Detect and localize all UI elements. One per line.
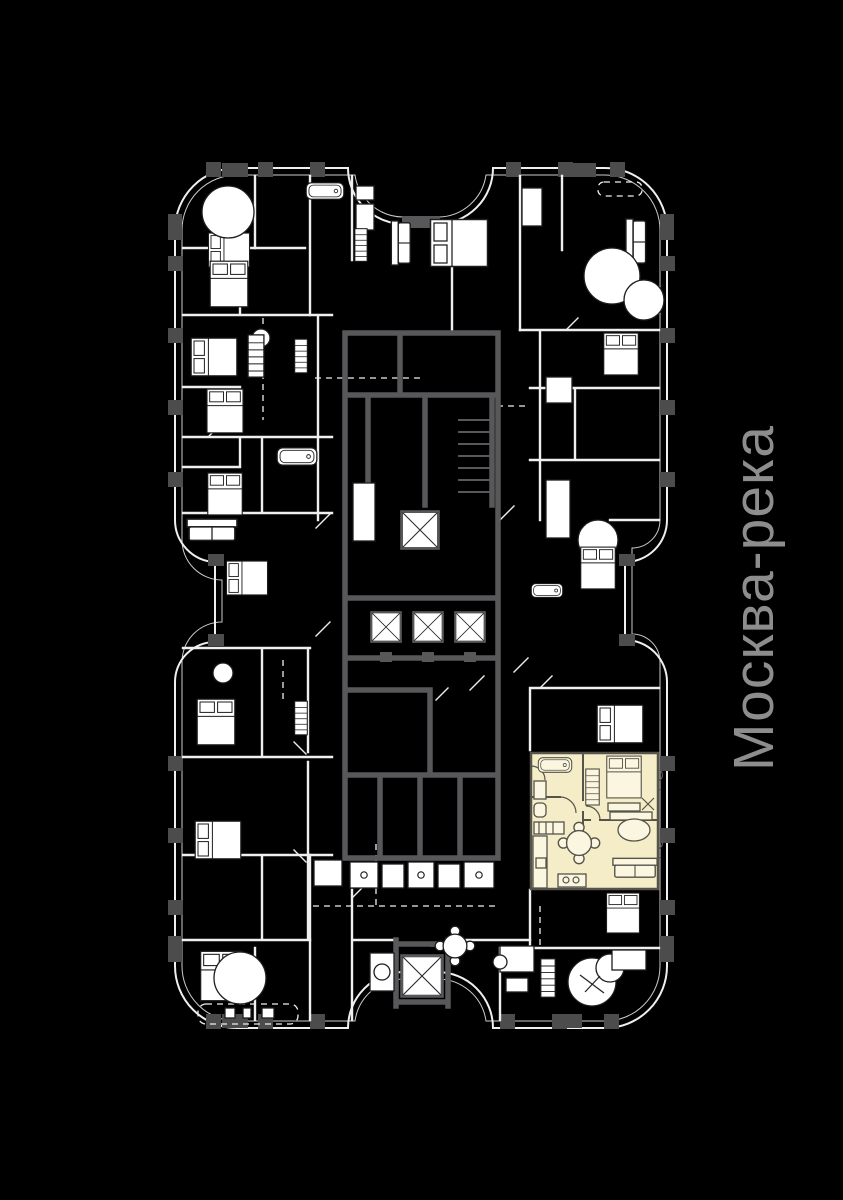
terrace-items — [225, 1008, 274, 1018]
lounge-chair-icon — [618, 819, 650, 841]
washbasin-icon — [374, 964, 390, 980]
elevator-shaft-icon — [413, 612, 442, 641]
bed-icon — [607, 756, 641, 798]
bed-icon — [604, 333, 638, 375]
daybed-icon — [612, 950, 646, 970]
rug-icon — [214, 952, 266, 1004]
stair-treads — [458, 420, 492, 492]
bed-icon — [197, 699, 235, 745]
bench-icon — [608, 803, 640, 811]
toilet-icon — [534, 803, 546, 817]
bed-icon — [581, 547, 615, 589]
sofa-icon — [187, 519, 237, 540]
bed-icon — [431, 220, 488, 267]
bed-icon — [210, 261, 248, 307]
bed-icon — [597, 705, 643, 743]
side-table-icon — [506, 978, 528, 992]
armchair-icon — [624, 280, 664, 320]
washer-icon — [546, 377, 572, 403]
sofa-icon — [391, 221, 410, 265]
chair-icon — [493, 955, 507, 969]
wardrobe-icon — [541, 959, 555, 997]
bed-icon — [191, 338, 237, 376]
washbasin-icon — [534, 781, 546, 799]
bathtub-icon — [277, 448, 317, 465]
wardrobe-icon — [248, 335, 264, 377]
bed-icon — [226, 561, 267, 595]
bed-icon — [208, 473, 242, 515]
kitchen-unit-icon — [546, 480, 570, 538]
stove-icon — [558, 874, 586, 887]
floor-plan-canvas: Москва-река — [0, 0, 843, 1200]
sofa-icon — [613, 858, 657, 877]
bed-icon — [607, 893, 640, 933]
sink-icon — [536, 858, 546, 868]
armchair-icon — [213, 663, 233, 683]
stair-shaft-icon — [402, 956, 442, 996]
service-shaft-icon — [402, 512, 439, 549]
wardrobe-icon — [355, 229, 367, 262]
kitchen-unit-icon — [353, 483, 375, 541]
river-label: Москва-река — [722, 425, 786, 771]
kitchen-strip — [314, 860, 494, 888]
floor-plan-page: Москва-река — [0, 0, 843, 1200]
highlighted-apartment[interactable] — [531, 753, 663, 889]
door-swing-lines — [208, 318, 578, 898]
bathtub-icon — [538, 758, 571, 773]
core — [345, 333, 498, 1006]
bathtub-icon — [531, 584, 562, 598]
elevator-shaft-icon — [455, 612, 484, 641]
wardrobe-icon — [586, 769, 600, 805]
bed-icon — [207, 389, 243, 433]
bed-icon — [195, 821, 241, 859]
elevator-shaft-icon — [371, 612, 400, 641]
wardrobe-icon — [295, 339, 308, 373]
shower-icon — [356, 204, 374, 230]
wardrobe-icon — [295, 701, 308, 735]
washbasin-icon — [522, 188, 542, 226]
washbasin-icon — [356, 186, 374, 200]
core-walls — [345, 333, 498, 858]
canopy-icon — [202, 186, 254, 238]
bathtub-icon — [306, 183, 344, 199]
